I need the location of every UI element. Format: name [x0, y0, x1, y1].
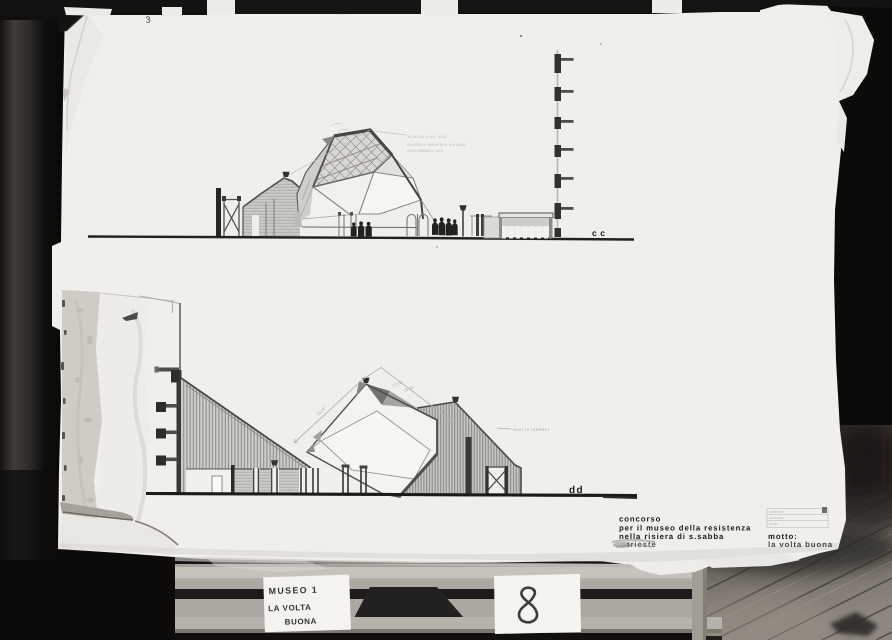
svg-text:scala: scala	[769, 522, 777, 526]
svg-text:concorso: concorso	[619, 515, 661, 524]
svg-text:LA VOLTA: LA VOLTA	[268, 603, 312, 613]
svg-text:altezza s mt. slm: altezza s mt. slm	[408, 134, 447, 139]
svg-text:MUSEO 1: MUSEO 1	[268, 585, 318, 597]
svg-text:3.10: 3.10	[268, 455, 277, 460]
svg-text:muri in mattoni: muri in mattoni	[513, 427, 549, 432]
svg-text:struttura metallica saldata: struttura metallica saldata	[407, 142, 466, 147]
svg-text:vetri retinati s mm: vetri retinati s mm	[407, 148, 444, 153]
svg-text:cartella n.: cartella n.	[769, 510, 785, 514]
svg-text:BUONA: BUONA	[284, 617, 317, 627]
svg-text:elaborato: elaborato	[769, 516, 784, 520]
svg-text:cc: cc	[592, 228, 609, 238]
svg-text:la volta buona: la volta buona	[768, 540, 833, 549]
